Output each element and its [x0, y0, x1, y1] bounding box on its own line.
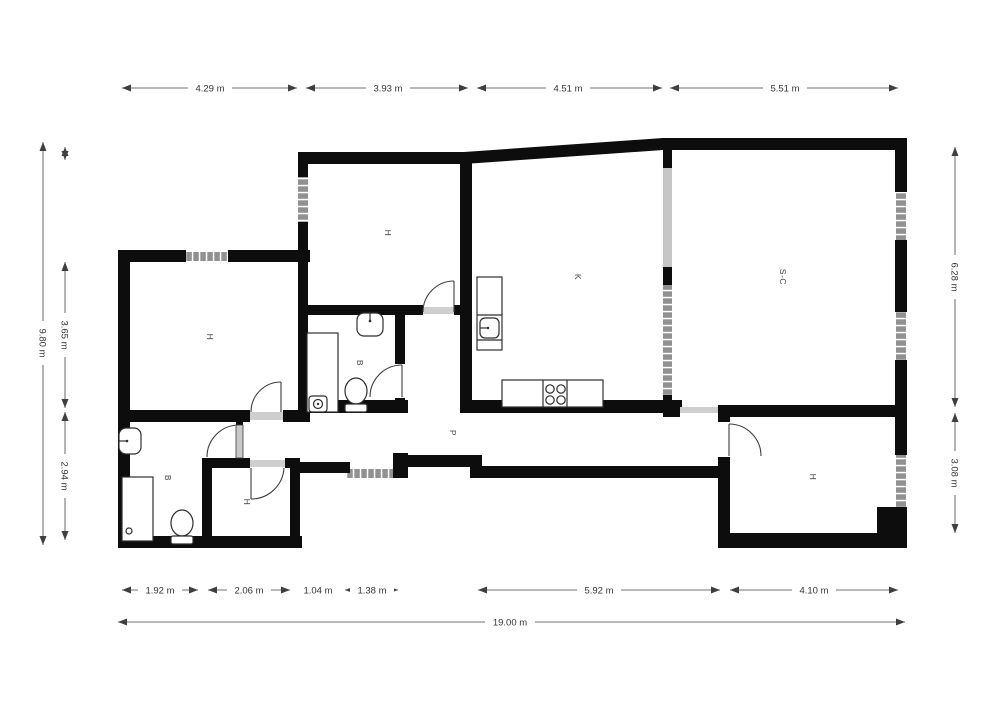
room-label-b2: B: [163, 475, 173, 481]
b1-washer-icon: [309, 396, 327, 412]
wall-h1-top-right: [228, 250, 310, 262]
window-hall-bottom: [347, 469, 393, 478]
door-h1: [251, 382, 281, 412]
b2-sink-icon: [119, 428, 141, 454]
dim-label-right-2: 3.08 m: [949, 458, 960, 487]
window-ksc-glass: [663, 168, 672, 267]
wall-exterior-right-2: [895, 240, 907, 312]
door-b2-leaf: [236, 425, 243, 458]
dim-label-top-2: 3.93 m: [373, 84, 402, 95]
window-h1-top: [186, 252, 228, 261]
kitchen-counter-left: [477, 277, 502, 350]
dim-label-left-total: 9.80 m: [37, 328, 48, 357]
wall-b1-right-upper: [395, 308, 405, 364]
wall-hall-bottom-block: [393, 453, 408, 478]
room-label-hall: P: [448, 430, 458, 436]
threshold-salon-opening: [680, 407, 718, 413]
wall-h3-right: [290, 460, 300, 548]
room-label-b1: B: [355, 360, 365, 366]
wall-b2-door-jamb: [236, 413, 243, 425]
wall-kitchen-top-sloped: [464, 138, 663, 164]
dim-label-bottom-5: 5.92 m: [584, 586, 613, 597]
window-h2-left: [298, 177, 308, 222]
wall-hall-bottom-mid: [404, 455, 476, 467]
wall-exterior-right-1: [895, 138, 907, 192]
wall-kitchen-left: [460, 152, 472, 413]
dim-label-bottom-6: 4.10 m: [799, 586, 828, 597]
dim-label-bottom-2: 2.06 m: [234, 586, 263, 597]
room-label-salon: S-C: [778, 269, 788, 285]
dim-label-bottom-3: 1.04 m: [303, 586, 332, 597]
threshold-h3-door: [250, 460, 285, 467]
wall-hall-bottom-east: [477, 466, 722, 478]
room-label-h3: H: [242, 499, 252, 506]
b1-toilet-icon: [345, 378, 367, 412]
dim-label-bottom-4: 1.38 m: [357, 586, 386, 597]
wall-ksc-divider-bottom: [663, 395, 672, 413]
dim-label-left-2: 2.94 m: [59, 461, 70, 490]
wall-ksc-divider-top: [663, 138, 672, 168]
window-ksc-slider: [663, 285, 672, 395]
window-salon-right-2: [896, 312, 906, 360]
window-h4-right: [896, 455, 906, 507]
window-salon-right-1: [896, 192, 906, 240]
wall-h3-left: [202, 458, 212, 548]
floor-plan-canvas: H H H H B B K S-C P 4.29 m 3.93 m 4.51 m…: [0, 0, 1000, 708]
room-label-h1: H: [205, 334, 215, 341]
threshold-h2-door: [423, 307, 454, 314]
room-label-h4: H: [808, 474, 818, 481]
door-h1-arc: [251, 382, 281, 412]
wall-h3-top-right: [285, 458, 300, 468]
b2-shower-icon: [122, 477, 153, 541]
wall-h1-bottom-left: [118, 410, 250, 422]
wall-h4-bottom: [718, 533, 907, 548]
door-b2: [207, 425, 243, 458]
dim-label-left-1: 3.65 m: [59, 320, 70, 349]
wall-ksc-divider-mid: [663, 267, 672, 285]
dim-label-top-4: 5.51 m: [770, 84, 799, 95]
door-h4-arc: [729, 424, 761, 456]
door-h3: [251, 468, 284, 499]
wall-h2-top: [298, 152, 466, 164]
wall-h1-top-left: [118, 250, 186, 262]
door-b2-arc: [207, 425, 239, 457]
b1-sink-icon: [357, 313, 383, 336]
door-b1: [370, 365, 402, 397]
room-label-h2: H: [383, 230, 393, 237]
dim-label-overall: 19.00 m: [493, 618, 527, 629]
room-label-kitchen: K: [573, 274, 583, 280]
walls: [118, 138, 907, 548]
wall-salon-top: [663, 138, 907, 150]
floor-plan-svg: H H H H B B K S-C P 4.29 m 3.93 m 4.51 m…: [0, 0, 1000, 708]
kitchen-sink-icon: [480, 318, 499, 338]
dim-label-top-1: 4.29 m: [195, 84, 224, 95]
door-b1-arc: [370, 365, 402, 397]
dim-label-top-3: 4.51 m: [553, 84, 582, 95]
wall-salon-bottom-east: [718, 405, 907, 417]
dim-label-bottom-1: 1.92 m: [145, 586, 174, 597]
threshold-h1-door: [250, 412, 283, 420]
b2-toilet-icon: [171, 510, 193, 544]
dim-label-right-1: 6.28 m: [949, 262, 960, 291]
door-h3-arc: [251, 468, 284, 499]
door-h4: [729, 424, 761, 456]
